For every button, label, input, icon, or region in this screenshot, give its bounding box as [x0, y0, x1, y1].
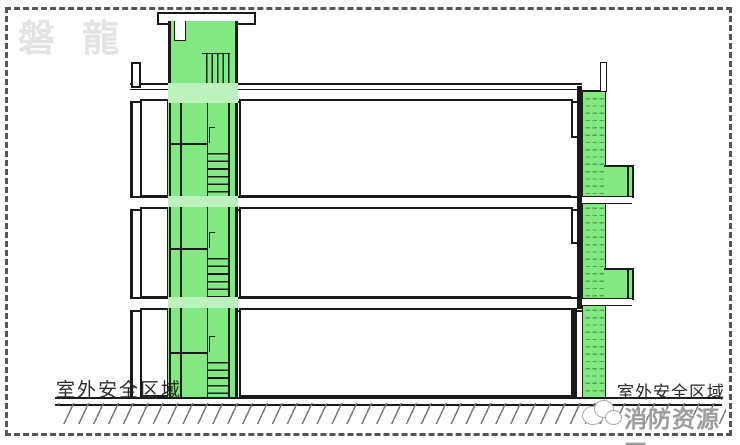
tower-wall-inner-left — [180, 103, 182, 197]
room-main-floor2 — [239, 207, 571, 298]
balcony-slab-floor3 — [582, 196, 633, 204]
balcony-inner-rail-line — [627, 167, 629, 199]
refuge-balcony-floor3 — [604, 165, 634, 199]
tower-wall-outer-right — [235, 207, 239, 297]
handrail-tick — [209, 336, 215, 338]
stair-risers-top-flight — [202, 53, 230, 83]
room-main-floor1 — [239, 308, 571, 397]
handrail-mark — [209, 336, 211, 352]
room-main-floor3 — [239, 99, 571, 197]
handrail-mark — [209, 127, 211, 143]
mid-landing-line — [169, 352, 207, 354]
brand-logo-cloud-icon — [580, 397, 626, 427]
stair-flight-steps — [208, 356, 228, 398]
tower-wall-left — [168, 21, 171, 83]
right-wall-stub-floor2 — [571, 207, 581, 244]
tower-wall-outer-right — [235, 308, 239, 397]
right-wall-ground-floor — [571, 308, 577, 397]
room-left-floor2 — [140, 207, 169, 298]
tower-wall-outer-left — [169, 207, 172, 297]
tower-wall-inner-right — [228, 308, 230, 397]
tower-wall-inner-left — [180, 207, 182, 297]
left-exterior-wall — [130, 87, 134, 397]
balcony-inner-rail-line — [627, 270, 629, 301]
handrail-tick — [209, 232, 215, 234]
right-wall-stub-floor3 — [571, 99, 581, 138]
stair-flight-steps — [208, 252, 228, 297]
shaft-opening-upper-slab — [168, 196, 238, 207]
cloud-bump — [605, 410, 622, 425]
left-roof-parapet — [131, 62, 141, 88]
shaft-opening-lower-slab — [168, 297, 238, 308]
building-section-diagram: 磐 龍 — [0, 0, 740, 445]
shaft-opening-roof-level — [168, 83, 238, 103]
tower-top-notch — [174, 21, 187, 42]
mid-landing-line — [169, 248, 207, 250]
stair-flight-steps — [208, 147, 228, 197]
watermark-top-left: 磐 龍 — [18, 8, 128, 62]
mid-landing-line — [169, 143, 207, 145]
tower-wall-outer-right — [235, 103, 239, 197]
safe-area-label-left: 室外安全区域 — [56, 375, 182, 402]
exterior-evacuation-shaft — [582, 90, 607, 401]
balcony-slab-floor2 — [582, 298, 633, 306]
refuge-balcony-floor2 — [604, 268, 634, 301]
tower-wall-inner-right — [228, 103, 230, 197]
stair-tower-floor3-segment — [168, 103, 238, 197]
stair-tower-top-segment — [168, 21, 238, 83]
tower-wall-right — [235, 21, 238, 83]
tower-wall-outer-left — [169, 103, 172, 197]
handrail-tick — [209, 127, 215, 129]
handrail-mark — [209, 232, 211, 248]
shaft-top-railing-post — [600, 62, 608, 92]
tower-wall-inner-right — [228, 207, 230, 297]
stair-tower-floor2-segment — [168, 207, 238, 297]
room-left-floor3 — [140, 99, 169, 197]
watermark-bottom-right: 消防资源网 — [624, 400, 740, 445]
